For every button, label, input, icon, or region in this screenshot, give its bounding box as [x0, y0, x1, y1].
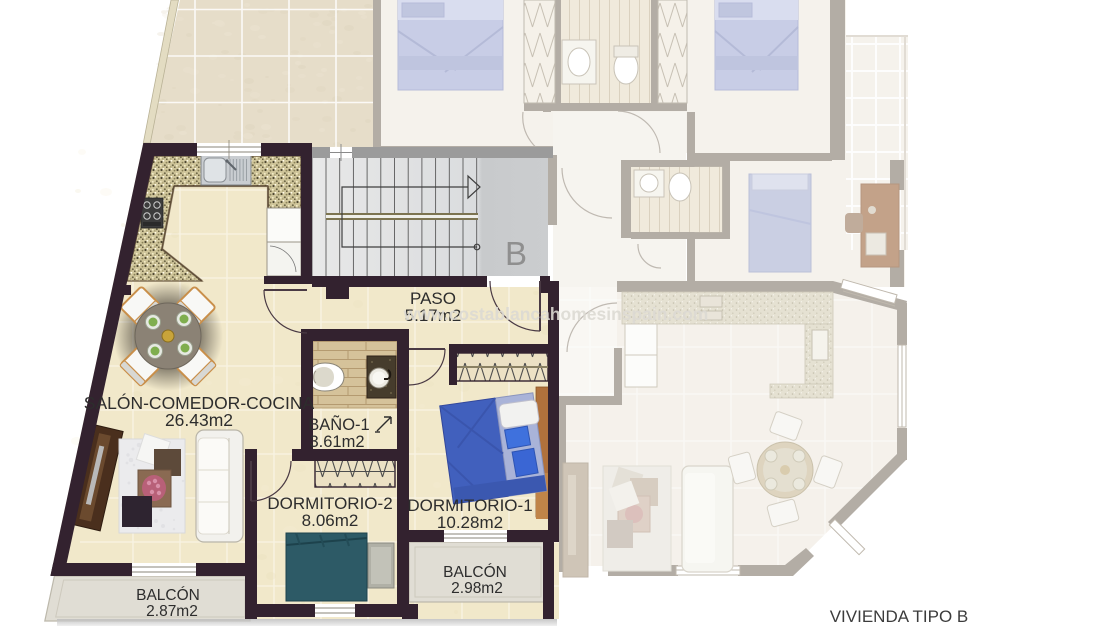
svg-text:10.28m2: 10.28m2 — [437, 513, 503, 532]
svg-text:BAÑO-1: BAÑO-1 — [308, 414, 369, 434]
svg-text:BALCÓN: BALCÓN — [443, 564, 507, 581]
svg-text:B: B — [505, 235, 527, 272]
svg-text:VIVIENDA TIPO B: VIVIENDA TIPO B — [830, 607, 969, 626]
svg-text:BALCÓN: BALCÓN — [136, 587, 200, 604]
svg-text:8.06m2: 8.06m2 — [302, 511, 359, 530]
svg-text:26.43m2: 26.43m2 — [165, 410, 233, 430]
svg-text:www.costablancahomesinspain.co: www.costablancahomesinspain.com — [403, 304, 709, 324]
svg-text:2.98m2: 2.98m2 — [451, 580, 503, 597]
svg-text:3.61m2: 3.61m2 — [309, 433, 364, 451]
svg-text:2.87m2: 2.87m2 — [146, 603, 198, 620]
